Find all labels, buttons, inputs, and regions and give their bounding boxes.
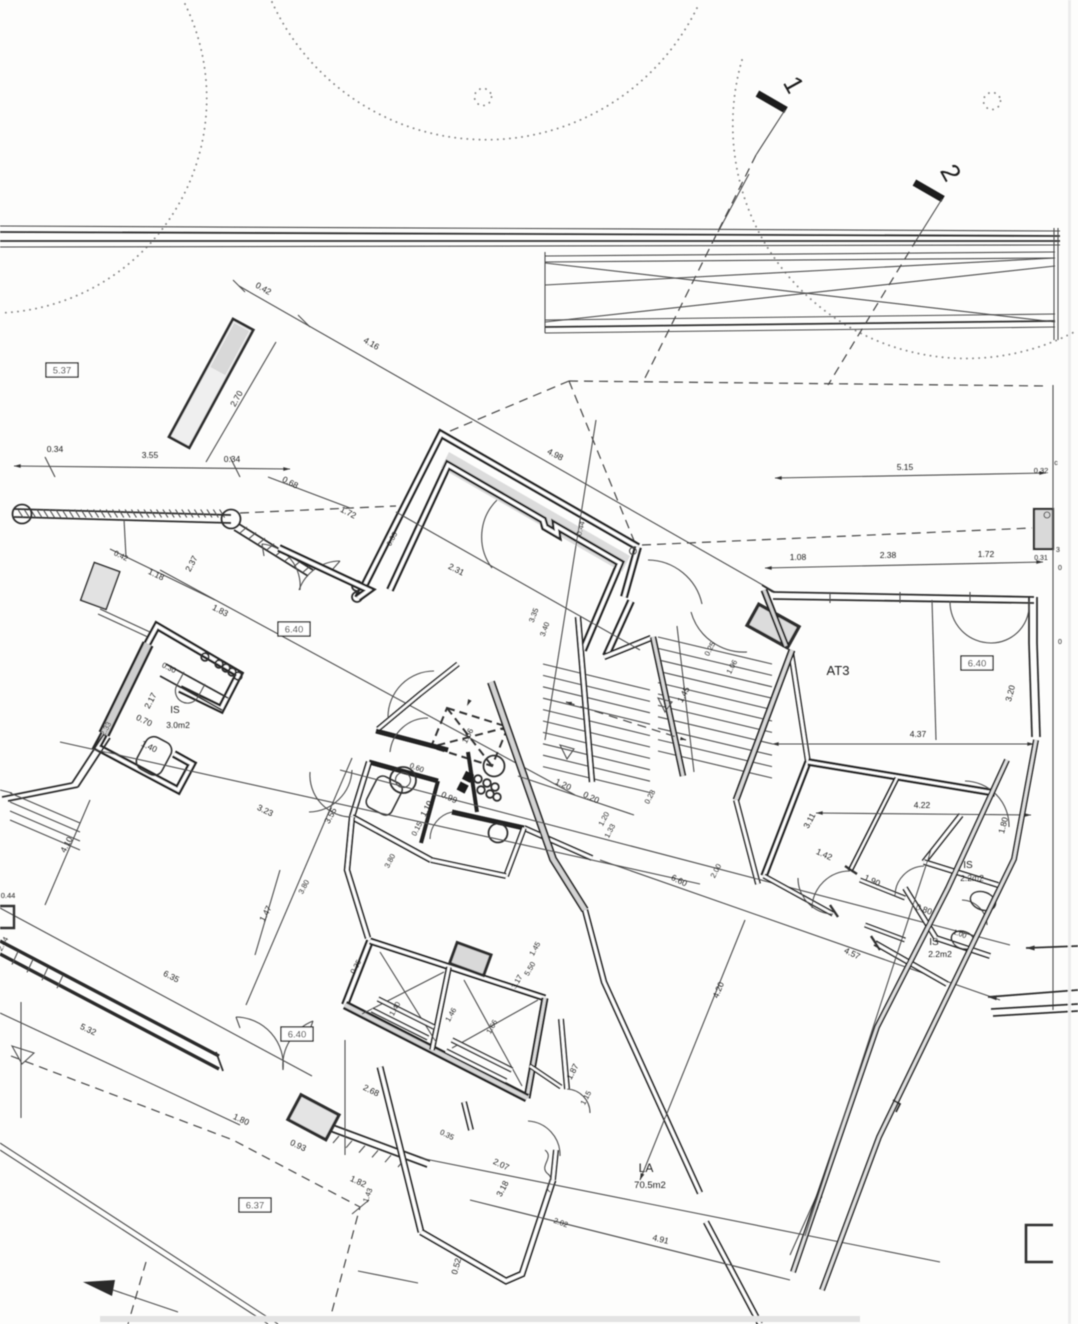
svg-text:2.38: 2.38 xyxy=(880,550,897,560)
svg-text:IS: IS xyxy=(170,705,180,716)
svg-text:6.40: 6.40 xyxy=(285,625,304,636)
svg-text:c: c xyxy=(1054,460,1058,467)
svg-text:2.2m2: 2.2m2 xyxy=(928,949,952,959)
svg-text:2.2m2: 2.2m2 xyxy=(960,873,984,883)
svg-text:LA: LA xyxy=(639,1161,654,1175)
svg-text:5.15: 5.15 xyxy=(897,462,914,472)
svg-text:0.31: 0.31 xyxy=(1034,555,1048,562)
svg-text:3.55: 3.55 xyxy=(142,450,159,460)
svg-text:AT3: AT3 xyxy=(827,663,850,678)
svg-text:0: 0 xyxy=(1058,565,1062,572)
svg-text:1.08: 1.08 xyxy=(790,552,807,562)
svg-text:IS: IS xyxy=(963,860,973,871)
svg-text:3: 3 xyxy=(1056,547,1060,554)
svg-text:0.32: 0.32 xyxy=(1034,466,1049,475)
svg-text:5.37: 5.37 xyxy=(53,366,72,377)
svg-text:4.37: 4.37 xyxy=(910,729,927,739)
svg-text:0.34: 0.34 xyxy=(47,444,64,454)
svg-text:IS: IS xyxy=(929,937,939,948)
svg-text:3.0m2: 3.0m2 xyxy=(166,720,190,730)
svg-text:6.37: 6.37 xyxy=(246,1201,265,1212)
svg-text:0: 0 xyxy=(1058,639,1062,646)
svg-text:6.40: 6.40 xyxy=(968,659,987,670)
svg-text:1.72: 1.72 xyxy=(978,549,995,559)
svg-text:70.5m2: 70.5m2 xyxy=(634,1180,666,1191)
svg-text:6.40: 6.40 xyxy=(288,1030,307,1041)
svg-text:4.22: 4.22 xyxy=(914,800,931,810)
svg-text:0.34: 0.34 xyxy=(224,454,241,464)
svg-text:0.44: 0.44 xyxy=(1,891,16,900)
